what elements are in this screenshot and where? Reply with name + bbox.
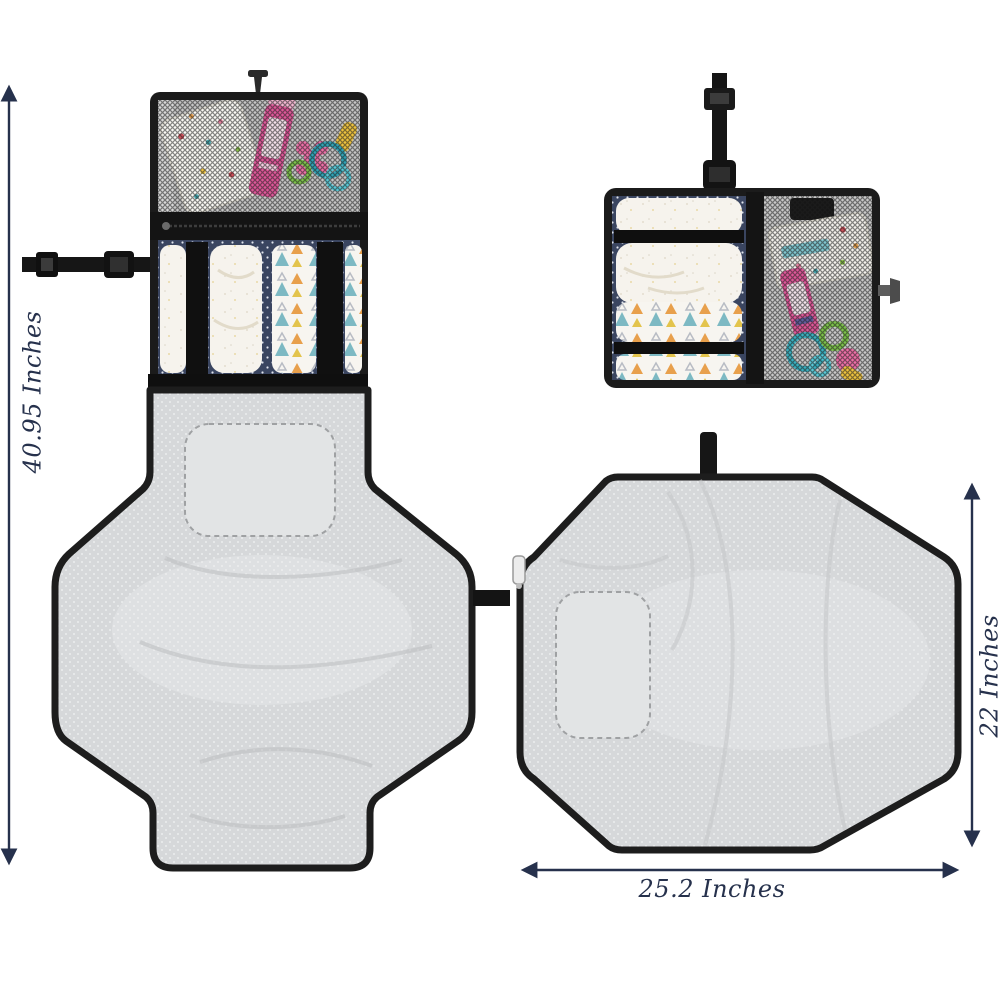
head-cushion	[185, 424, 335, 536]
mesh-overlay	[764, 196, 872, 380]
diaper-cream-top	[616, 198, 742, 234]
side-knob	[878, 278, 900, 304]
elastic-strap	[614, 230, 744, 243]
edge-zipper	[513, 556, 525, 589]
diaper-triangle-row	[616, 302, 742, 342]
mesh-overlay	[158, 100, 360, 212]
elastic-strap	[317, 242, 343, 376]
diaper-cream-middle	[210, 245, 262, 373]
head-cushion	[556, 592, 650, 738]
hanging-knob	[248, 70, 268, 94]
product-image: 40.95 Inches 22 Inches 25.2 Inches	[0, 0, 1000, 1000]
diaper-cream-left	[160, 245, 186, 373]
changing-mat-horizontal-view	[513, 432, 958, 850]
organizer-folded-view	[604, 73, 900, 388]
open-width-label: 25.2 Inches	[638, 875, 786, 903]
diaper-triangle-right	[345, 245, 362, 373]
changing-mat-vertical-view	[55, 390, 510, 868]
hanging-strap-buckle	[703, 73, 736, 191]
diaper-triangle-left	[272, 245, 316, 373]
zipper-pull	[162, 222, 170, 230]
mesh-pocket-top	[158, 94, 360, 216]
dimension-open-height: 40.95 Inches	[9, 88, 47, 862]
folded-height-label: 22 Inches	[976, 614, 1000, 738]
center-divider	[746, 192, 764, 384]
diaper-compartment	[158, 240, 362, 378]
zipper-band	[150, 212, 368, 240]
elastic-strap	[186, 242, 208, 376]
illustration-svg: 40.95 Inches 22 Inches 25.2 Inches	[0, 0, 1000, 1000]
elastic-strap	[614, 342, 744, 354]
folded-diaper-side	[612, 196, 746, 380]
folded-mesh-pocket	[764, 196, 875, 386]
open-height-label: 40.95 Inches	[19, 311, 47, 475]
side-strap-buckle	[22, 251, 154, 278]
mat-side-strap	[473, 590, 510, 606]
dimension-open-width: 25.2 Inches	[524, 870, 956, 903]
diaper-triangle-bottom	[616, 354, 742, 380]
organizer-open-view	[22, 70, 368, 392]
dimension-folded-height: 22 Inches	[972, 486, 1000, 844]
